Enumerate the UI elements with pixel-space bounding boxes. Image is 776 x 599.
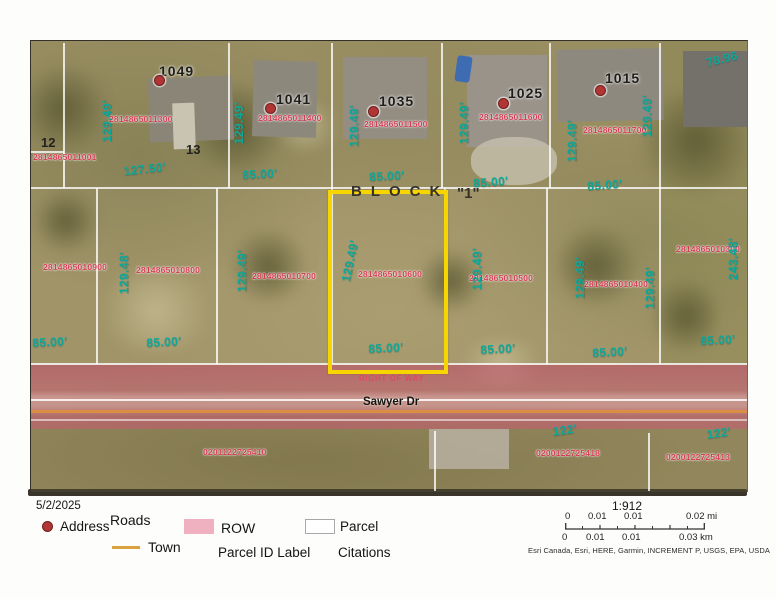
- parcel-id-label: 2814865011300: [109, 114, 173, 124]
- dimension-label: 129.49': [470, 243, 484, 295]
- address-label-1049: 1049: [159, 63, 194, 79]
- dimension-label: 85.00': [472, 341, 525, 358]
- map-date: 5/2/2025: [36, 500, 81, 512]
- parcel-id-label: 0200122725413: [666, 452, 730, 462]
- scale-km-tick: 0.01: [586, 532, 605, 543]
- dimension-label: 129.49': [643, 262, 657, 314]
- address-label-1025: 1025: [508, 85, 543, 101]
- parcel-id-label: 2814865010400: [584, 279, 648, 289]
- legend-item-citations: Citations: [338, 545, 391, 560]
- parcel-line: [648, 433, 650, 491]
- right-of-way-label: RIGHT OF WAY: [359, 374, 424, 383]
- road-edge-line: [31, 419, 747, 421]
- parcel-id-label: 2814865011500: [364, 119, 428, 129]
- scale-km-tick: 0.01: [622, 532, 641, 543]
- legend-item-parcel-id: Parcel ID Label: [218, 545, 310, 560]
- parcel-line: [63, 43, 65, 188]
- driveway-south: [429, 429, 509, 469]
- road-center-line-orange: [31, 410, 747, 413]
- parcel-swatch: [305, 519, 335, 534]
- road-name-label: Sawyer Dr: [363, 396, 419, 408]
- parcel-id-label-selected: 2814865010600: [358, 269, 422, 279]
- parcel-id-label: 2814865010900: [43, 262, 107, 272]
- address-label-1035: 1035: [379, 93, 414, 109]
- dimension-label: 85.00': [584, 344, 637, 361]
- scale-mi-tick: 0.01: [624, 511, 643, 522]
- parcel-line: [228, 43, 230, 188]
- parcel-line: [216, 188, 218, 364]
- legend-item-town: Town: [148, 539, 181, 555]
- map-attribution: Esri Canada, Esri, HERE, Garmin, INCREME…: [528, 546, 770, 555]
- scale-km-tick: 0.03 km: [679, 532, 713, 543]
- dimension-label: 243.48': [726, 233, 740, 285]
- map-canvas[interactable]: 12 13 BLOCK "1" 1049 1041 1035 1025 1015…: [30, 40, 748, 492]
- town-line-swatch: [112, 546, 140, 549]
- dimension-label: 129.49': [457, 97, 471, 149]
- dimension-label: 85.00': [692, 332, 745, 349]
- dimension-label: 129.49': [232, 97, 246, 149]
- address-point-1035[interactable]: [368, 106, 379, 117]
- dimension-label: 129.49': [573, 252, 587, 304]
- dimension-label: 129.49': [565, 115, 579, 167]
- map-export-page: 12 13 BLOCK "1" 1049 1041 1035 1025 1015…: [0, 0, 776, 599]
- address-point-1025[interactable]: [498, 98, 509, 109]
- parcel-line: [96, 188, 98, 364]
- scale-mi-tick: 0.02 mi: [686, 511, 717, 522]
- dimension-label: 129.49': [347, 100, 361, 152]
- dimension-label: 85.00': [138, 334, 191, 351]
- scale-bar-ruler: [565, 522, 709, 532]
- parcel-id-label: 2814865010800: [136, 265, 200, 275]
- parcel-line: [659, 43, 661, 364]
- legend-group-roads: Roads: [110, 512, 150, 528]
- parcel-id-label: 2814865011700: [583, 125, 647, 135]
- dimension-label: 85.00': [30, 334, 76, 351]
- row-swatch: [184, 519, 214, 534]
- scale-mi-tick: 0: [565, 511, 570, 522]
- parcel-id-label: 0201122725410: [203, 447, 267, 457]
- lot-number-13: 13: [186, 142, 200, 157]
- dimension-label: 129.49': [235, 245, 249, 297]
- dimension-label: 129.49': [100, 95, 114, 147]
- dimension-label: 129.48': [117, 247, 131, 299]
- dimension-label: 85.00': [360, 340, 413, 357]
- dimension-label: 85.00': [361, 168, 414, 185]
- dimension-label: 129.49': [640, 90, 654, 142]
- parcel-line: [549, 43, 551, 188]
- parcel-id-label: 2814865011600: [479, 112, 543, 122]
- tree-patch: [551, 226, 641, 306]
- parcel-line: [441, 43, 443, 188]
- address-label-1041: 1041: [276, 91, 311, 107]
- block-label: BLOCK: [351, 183, 449, 200]
- parcel-line: [331, 43, 333, 188]
- legend-item-address: Address: [60, 519, 110, 534]
- parcel-id-label: 0200122725418: [536, 448, 600, 458]
- scale-km-tick: 0: [562, 532, 567, 543]
- parcel-line: [434, 431, 436, 491]
- scale-mi-tick: 0.01: [588, 511, 607, 522]
- terrain-zone-south: [31, 429, 747, 492]
- address-label-1015: 1015: [605, 70, 640, 86]
- address-legend-dot: [42, 521, 53, 532]
- address-point-1015[interactable]: [595, 85, 606, 96]
- parcel-id-label: 2814865010700: [252, 271, 316, 281]
- legend-item-parcel: Parcel: [340, 519, 378, 534]
- dimension-label: 85.00': [234, 166, 287, 183]
- parcel-id-label: 2814865011001: [33, 152, 97, 162]
- legend-item-row: ROW: [221, 520, 255, 536]
- parcel-line: [546, 188, 548, 364]
- address-point-1049[interactable]: [154, 75, 165, 86]
- lot-number-12: 12: [41, 135, 55, 150]
- tree-patch: [31, 191, 101, 251]
- dimension-label: 85.00': [579, 176, 632, 194]
- parcel-id-label: 2814865011400: [258, 113, 322, 123]
